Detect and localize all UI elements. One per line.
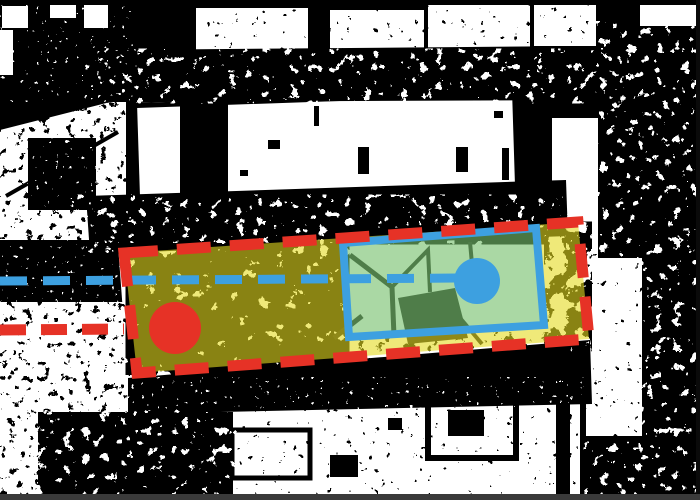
blue-marker bbox=[454, 258, 500, 304]
annotated-aerial-figure bbox=[0, 0, 700, 500]
red-marker bbox=[149, 302, 201, 354]
annotation-layer bbox=[0, 0, 700, 500]
red-dashed-line bbox=[0, 329, 124, 330]
blue-dashed-line bbox=[0, 278, 466, 281]
